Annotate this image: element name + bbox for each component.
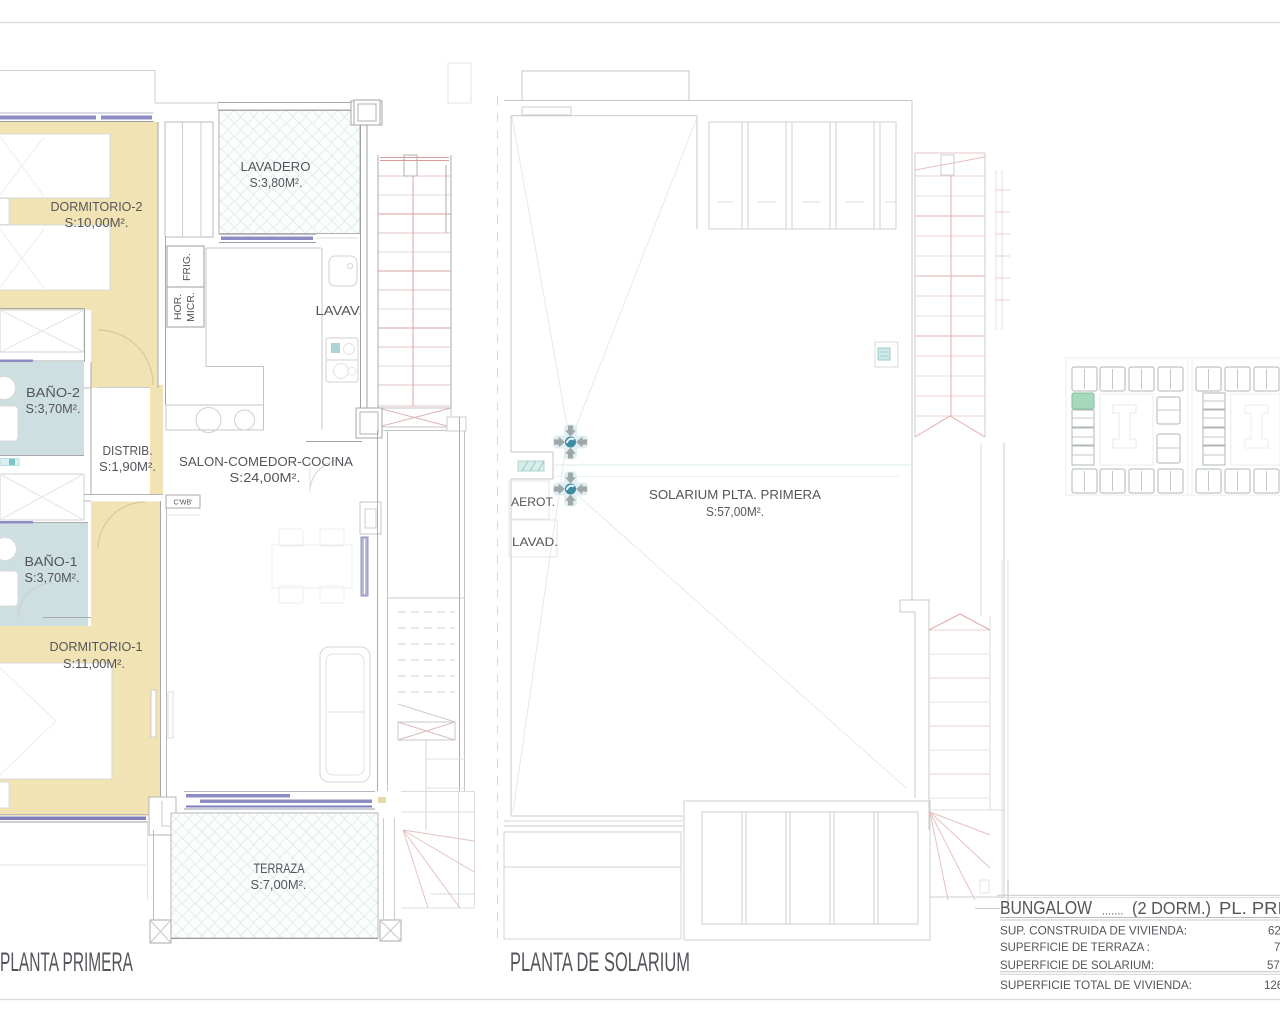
svg-text:PL. PRIMERA: PL. PRIMERA bbox=[1219, 898, 1280, 918]
svg-text:PLANTA DE SOLARIUM: PLANTA DE SOLARIUM bbox=[510, 947, 690, 977]
svg-text:SUPERFICIE DE TERRAZA :: SUPERFICIE DE TERRAZA : bbox=[1000, 942, 1150, 954]
svg-text:AEROT.: AEROT. bbox=[511, 497, 555, 509]
svg-text:BAÑO-1: BAÑO-1 bbox=[25, 554, 78, 569]
svg-text:DISTRIB.: DISTRIB. bbox=[103, 444, 153, 458]
svg-text:S:3,70M².: S:3,70M². bbox=[26, 402, 81, 416]
svg-text:LAVADERO: LAVADERO bbox=[241, 159, 311, 174]
svg-text:S:24,00M².: S:24,00M². bbox=[230, 471, 301, 485]
svg-text:S:3,80M².: S:3,80M². bbox=[250, 176, 303, 190]
svg-text:MICR.: MICR. bbox=[185, 292, 197, 322]
svg-text:C'WB': C'WB' bbox=[173, 500, 192, 507]
svg-text:SUPERFICIE TOTAL DE VIVIENDA:: SUPERFICIE TOTAL DE VIVIENDA: bbox=[1000, 980, 1192, 992]
svg-text:BAÑO-2: BAÑO-2 bbox=[26, 385, 80, 400]
svg-text:HOR.: HOR. bbox=[172, 294, 184, 320]
svg-text:BUNGALOW: BUNGALOW bbox=[1000, 898, 1092, 918]
svg-text:SALON-COMEDOR-COCINA: SALON-COMEDOR-COCINA bbox=[179, 454, 353, 469]
svg-text:PLANTA PRIMERA: PLANTA PRIMERA bbox=[0, 947, 133, 977]
svg-text:(2 DORM.): (2 DORM.) bbox=[1132, 898, 1211, 918]
svg-text:S:10,00M².: S:10,00M². bbox=[65, 216, 129, 230]
svg-text:S:1,90M².: S:1,90M². bbox=[99, 460, 156, 474]
svg-text:SUPERFICIE DE SOLARIUM:: SUPERFICIE DE SOLARIUM: bbox=[1000, 960, 1154, 972]
svg-text:SUP. CONSTRUIDA DE VIVIENDA:: SUP. CONSTRUIDA DE VIVIENDA: bbox=[1000, 926, 1187, 938]
svg-text:FRIG.: FRIG. bbox=[181, 253, 193, 281]
svg-text:SOLARIUM PLTA. PRIMERA: SOLARIUM PLTA. PRIMERA bbox=[649, 488, 822, 502]
svg-text:.......: ....... bbox=[1102, 906, 1123, 918]
svg-text:126,70M².: 126,70M². bbox=[1264, 980, 1280, 992]
svg-text:57,00M².: 57,00M². bbox=[1267, 960, 1280, 972]
svg-text:TERRAZA: TERRAZA bbox=[254, 861, 305, 876]
svg-text:S:11,00M².: S:11,00M². bbox=[63, 657, 125, 671]
svg-text:DORMITORIO-2: DORMITORIO-2 bbox=[51, 199, 143, 214]
svg-text:62,70M².: 62,70M². bbox=[1268, 926, 1280, 938]
svg-text:S:7,00M².: S:7,00M². bbox=[251, 878, 307, 892]
svg-text:LAVAV.: LAVAV. bbox=[316, 304, 363, 318]
svg-text:LAVAD.: LAVAD. bbox=[512, 537, 558, 549]
svg-text:7,00M².: 7,00M². bbox=[1274, 942, 1280, 954]
svg-text:DORMITORIO-1: DORMITORIO-1 bbox=[50, 639, 143, 654]
svg-text:S:57,00M².: S:57,00M². bbox=[706, 505, 764, 519]
